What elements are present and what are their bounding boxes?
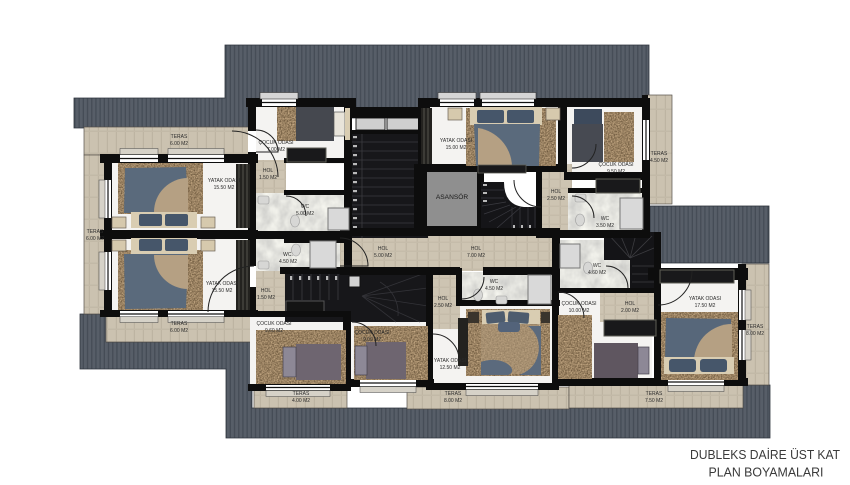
svg-text:ÇOCUK ODASI: ÇOCUK ODASI	[598, 162, 633, 168]
svg-text:TERAS: TERAS	[87, 229, 104, 235]
svg-text:ÇOCUK ODASI: ÇOCUK ODASI	[354, 330, 389, 336]
svg-text:4.50 M2: 4.50 M2	[485, 286, 503, 292]
svg-text:YATAK ODASI: YATAK ODASI	[208, 178, 240, 184]
svg-text:HOL: HOL	[551, 189, 562, 195]
svg-text:6.00 M2: 6.00 M2	[86, 236, 104, 242]
svg-text:2.50 M2: 2.50 M2	[434, 303, 452, 309]
svg-text:7.00 M2: 7.00 M2	[467, 253, 485, 259]
svg-text:PLAN BOYAMALARI: PLAN BOYAMALARI	[709, 465, 824, 480]
svg-text:17.50 M2: 17.50 M2	[695, 303, 716, 309]
svg-text:4.60 M2: 4.60 M2	[588, 270, 606, 276]
svg-text:TERAS: TERAS	[445, 391, 462, 397]
svg-text:4.50 M2: 4.50 M2	[650, 158, 668, 164]
svg-text:15.50 M2: 15.50 M2	[214, 185, 235, 191]
svg-text:ÇOCUK ODASI: ÇOCUK ODASI	[258, 140, 293, 146]
svg-text:HOL: HOL	[263, 168, 274, 174]
svg-text:YATAK ODASI: YATAK ODASI	[434, 358, 466, 364]
svg-text:TERAS: TERAS	[646, 391, 663, 397]
svg-text:WC: WC	[301, 204, 310, 210]
svg-text:5.00 M2: 5.00 M2	[296, 211, 314, 217]
svg-text:ÇOCUK ODASI: ÇOCUK ODASI	[561, 301, 596, 307]
svg-text:4.00 M2: 4.00 M2	[292, 398, 310, 404]
svg-text:YATAK ODASI: YATAK ODASI	[689, 296, 721, 302]
svg-text:WC: WC	[490, 279, 499, 285]
svg-text:ASANSÖR: ASANSÖR	[436, 193, 468, 201]
svg-text:7.50 M2: 7.50 M2	[645, 398, 663, 404]
svg-text:TERAS: TERAS	[171, 134, 188, 140]
svg-text:YATAK ODASI: YATAK ODASI	[206, 281, 238, 287]
svg-text:HOL: HOL	[378, 246, 389, 252]
svg-text:HOL: HOL	[471, 246, 482, 252]
svg-text:2.00 M2: 2.00 M2	[621, 308, 639, 314]
svg-text:ÇOCUK ODASI: ÇOCUK ODASI	[256, 321, 291, 327]
svg-text:9.60 M2: 9.60 M2	[265, 328, 283, 334]
svg-text:9.00 M2: 9.00 M2	[363, 337, 381, 343]
svg-text:6.00 M2: 6.00 M2	[170, 141, 188, 147]
svg-text:4.50 M2: 4.50 M2	[279, 259, 297, 265]
svg-text:WC: WC	[593, 263, 602, 269]
svg-text:TERAS: TERAS	[747, 324, 764, 330]
svg-text:HOL: HOL	[438, 296, 449, 302]
svg-text:DUBLEKS DAİRE ÜST KAT: DUBLEKS DAİRE ÜST KAT	[690, 447, 840, 462]
svg-text:7.00 M2: 7.00 M2	[267, 147, 285, 153]
svg-text:9.50 M2: 9.50 M2	[607, 169, 625, 175]
svg-text:HOL: HOL	[625, 301, 636, 307]
svg-text:1.50 M2: 1.50 M2	[257, 295, 275, 301]
svg-text:8.00 M2: 8.00 M2	[444, 398, 462, 404]
svg-text:2.50 M2: 2.50 M2	[547, 196, 565, 202]
svg-text:5.00 M2: 5.00 M2	[374, 253, 392, 259]
svg-text:8.00 M2: 8.00 M2	[746, 331, 764, 337]
svg-text:1.50 M2: 1.50 M2	[259, 175, 277, 181]
svg-text:3.50 M2: 3.50 M2	[596, 223, 614, 229]
svg-text:YATAK ODASI: YATAK ODASI	[440, 138, 472, 144]
svg-text:TERAS: TERAS	[651, 151, 668, 157]
svg-text:15.50 M2: 15.50 M2	[212, 288, 233, 294]
svg-text:6.00 M2: 6.00 M2	[170, 328, 188, 334]
svg-text:TERAS: TERAS	[171, 321, 188, 327]
svg-text:WC.: WC.	[283, 252, 293, 258]
svg-text:WC: WC	[601, 216, 610, 222]
svg-text:15.00 M2: 15.00 M2	[446, 145, 467, 151]
svg-text:TERAS: TERAS	[293, 391, 310, 397]
svg-text:HOL: HOL	[261, 288, 272, 294]
svg-text:10.00 M2: 10.00 M2	[569, 308, 590, 314]
svg-text:12.50 M2: 12.50 M2	[440, 365, 461, 371]
